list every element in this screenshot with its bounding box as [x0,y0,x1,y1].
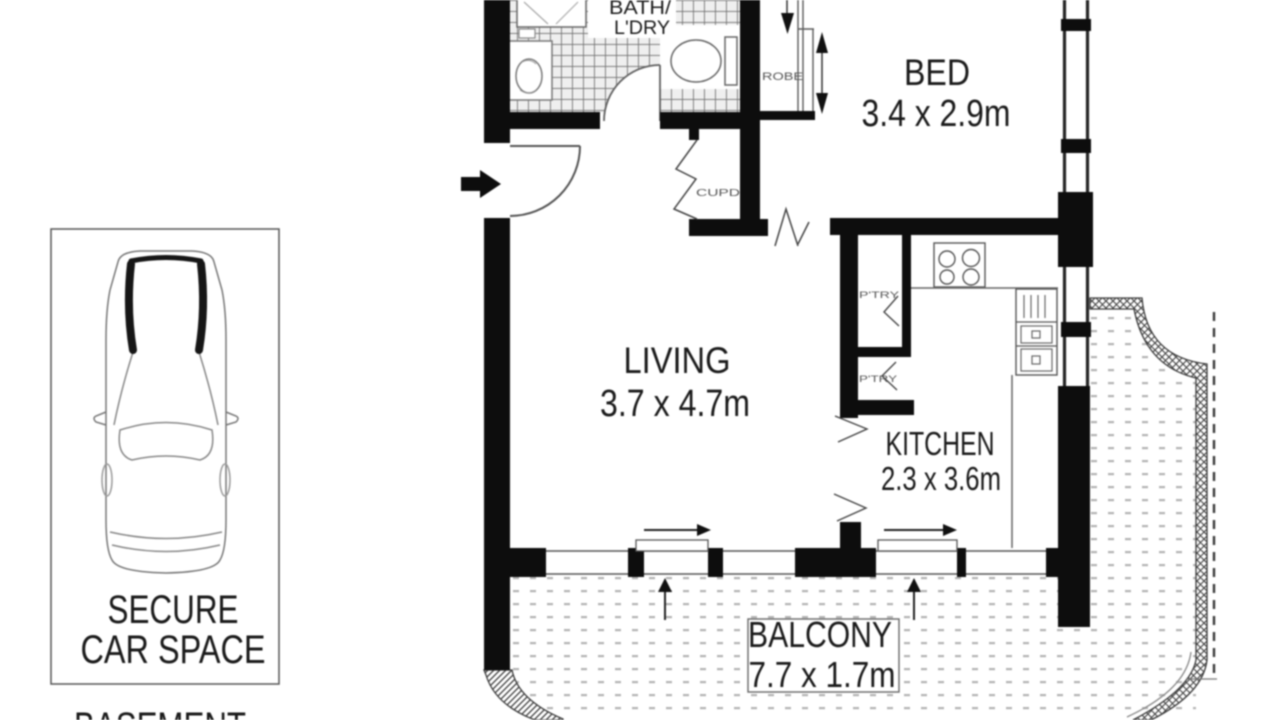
svg-text:CUPD: CUPD [696,188,740,199]
svg-text:3.7 x 4.7m: 3.7 x 4.7m [600,383,750,425]
svg-text:P'TRY: P'TRY [859,290,899,300]
svg-text:BASEMENT: BASEMENT [74,705,246,720]
svg-text:LIVING: LIVING [624,340,731,381]
svg-text:ROBE: ROBE [762,71,803,83]
svg-text:L'DRY: L'DRY [614,18,670,39]
svg-text:BALCONY: BALCONY [748,614,892,655]
svg-text:7.7 x 1.7m: 7.7 x 1.7m [749,654,896,695]
svg-text:P'TRY: P'TRY [859,374,897,384]
svg-text:3.4 x 2.9m: 3.4 x 2.9m [862,93,1011,135]
svg-text:BATH/: BATH/ [609,0,672,19]
svg-text:KITCHEN: KITCHEN [886,425,995,462]
svg-text:BED: BED [904,52,970,93]
svg-text:SECURE: SECURE [108,588,239,632]
svg-text:CAR SPACE: CAR SPACE [81,628,266,672]
svg-text:2.3 x 3.6m: 2.3 x 3.6m [881,460,1001,497]
